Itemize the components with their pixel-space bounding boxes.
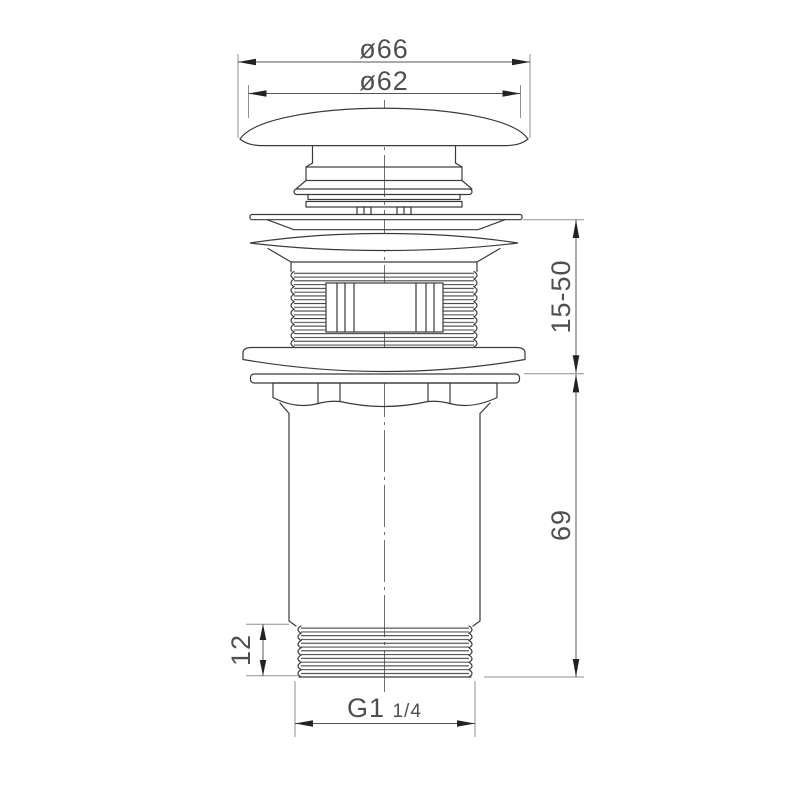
arrow-left-icon	[295, 720, 313, 727]
drain-assembly-outline	[240, 100, 528, 697]
overflow-window	[326, 283, 443, 332]
cap-dome	[240, 108, 528, 145]
lower-thread-section	[298, 626, 472, 677]
sealing-gasket	[243, 348, 525, 372]
dim-clamp-range: 15-50	[523, 220, 584, 374]
arrow-down-icon	[573, 659, 580, 677]
arrow-up-icon	[573, 374, 580, 392]
dim-text-cap-outer-diameter: ø66	[359, 34, 409, 64]
thread-size-prefix: G1	[347, 693, 385, 723]
dim-tail-length: 69	[484, 374, 584, 677]
arrow-up-icon	[573, 220, 580, 238]
arrow-left-icon	[238, 59, 256, 66]
dim-text-cap-face-diameter: ø62	[359, 66, 409, 96]
arrow-down-icon	[573, 355, 580, 373]
flange-plate	[250, 215, 522, 230]
dim-lower-thread-length: 12	[226, 624, 299, 675]
thread-size-fraction: 1/4	[392, 701, 421, 722]
dim-text-lower-thread-length: 12	[226, 634, 256, 666]
dim-text-connection-thread: G1 1/4	[347, 693, 422, 723]
arrow-up-icon	[260, 624, 267, 640]
drawing-canvas: ø66 ø62 15-50 69 12	[0, 0, 800, 800]
arrow-down-icon	[260, 660, 267, 676]
dim-text-tail-length: 69	[546, 509, 576, 541]
dim-text-clamp-range: 15-50	[546, 259, 576, 333]
upper-thread-section	[291, 272, 477, 348]
backing-washer	[251, 374, 520, 383]
arrow-right-icon	[503, 90, 521, 97]
drain-technical-drawing: ø66 ø62 15-50 69 12	[0, 0, 800, 800]
arrow-right-icon	[457, 720, 475, 727]
arrow-left-icon	[249, 90, 267, 97]
arrow-right-icon	[512, 59, 530, 66]
stem-rings	[294, 147, 472, 215]
